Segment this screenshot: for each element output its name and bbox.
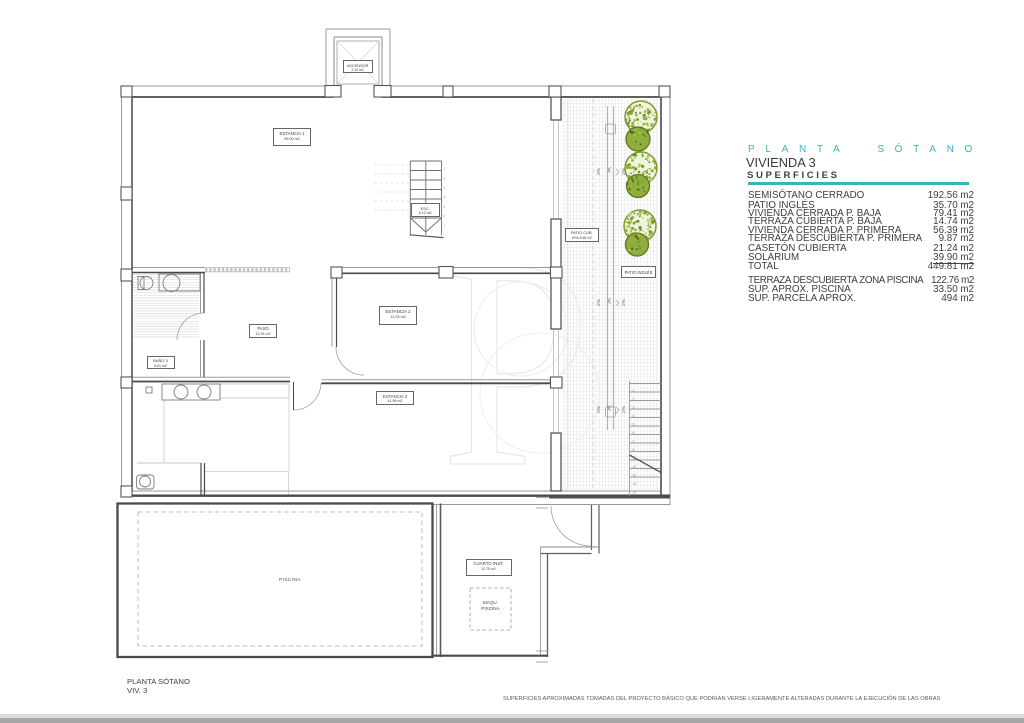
svg-text:2%: 2% xyxy=(621,167,627,175)
svg-text:2%: 2% xyxy=(621,298,627,306)
svg-text:4: 4 xyxy=(633,414,635,418)
svg-text:9: 9 xyxy=(633,457,635,461)
svg-text:2: 2 xyxy=(633,397,635,401)
svg-text:2%: 2% xyxy=(596,298,602,306)
svg-text:4: 4 xyxy=(444,196,446,200)
svg-text:8: 8 xyxy=(633,448,635,452)
svg-text:10: 10 xyxy=(633,465,637,469)
svg-text:12: 12 xyxy=(633,482,637,486)
svg-text:7: 7 xyxy=(444,224,446,228)
svg-text:1: 1 xyxy=(444,167,446,171)
svg-text:11: 11 xyxy=(633,474,637,478)
svg-text:7: 7 xyxy=(633,440,635,444)
svg-text:6: 6 xyxy=(444,215,446,219)
svg-text:5: 5 xyxy=(444,205,446,209)
svg-text:2: 2 xyxy=(444,177,446,181)
svg-text:2%: 2% xyxy=(596,167,602,175)
svg-text:3: 3 xyxy=(444,186,446,190)
svg-text:6: 6 xyxy=(633,431,635,435)
svg-text:1: 1 xyxy=(633,389,635,393)
svg-text:2%: 2% xyxy=(621,405,627,413)
svg-text:3: 3 xyxy=(633,406,635,410)
svg-text:5: 5 xyxy=(633,423,635,427)
svg-text:13: 13 xyxy=(633,491,637,495)
svg-text:2%: 2% xyxy=(596,405,602,413)
